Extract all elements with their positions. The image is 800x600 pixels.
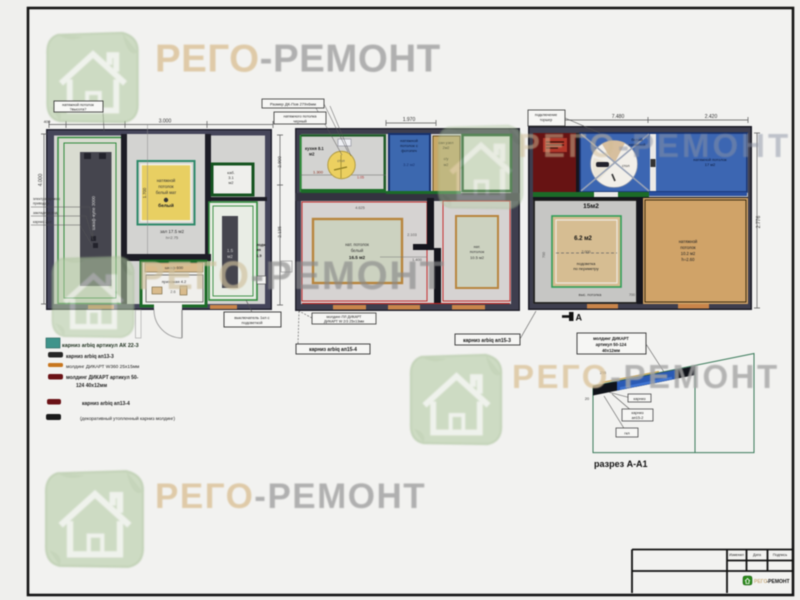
svg-text:фотопеч: фотопеч bbox=[401, 148, 417, 153]
svg-text:РЕГО: РЕГО bbox=[754, 579, 767, 585]
svg-text:разрез А-А1: разрез А-А1 bbox=[594, 459, 648, 469]
svg-text:Размер ДК-Пов 279х6мм: Размер ДК-Пов 279х6мм bbox=[270, 102, 316, 107]
svg-text:2.103: 2.103 bbox=[407, 233, 417, 237]
svg-text:карниз arbiq артикул АК 22-3: карниз arbiq артикул АК 22-3 bbox=[62, 343, 139, 349]
svg-text:400: 400 bbox=[44, 119, 51, 124]
svg-text:А: А bbox=[576, 313, 583, 323]
svg-text:молдинг ДИКАРТ артикул 50-: молдинг ДИКАРТ артикул 50- bbox=[66, 375, 139, 381]
svg-text:зал 17.5 м2: зал 17.5 м2 bbox=[160, 229, 185, 234]
svg-text:карниз 2шт: карниз 2шт bbox=[33, 220, 52, 224]
svg-text:2.135: 2.135 bbox=[277, 226, 282, 238]
svg-text:1.05: 1.05 bbox=[357, 176, 364, 180]
svg-text:ия: ия bbox=[257, 248, 261, 252]
svg-text:124 40х12мм: 124 40х12мм bbox=[76, 383, 107, 389]
svg-text:1.970: 1.970 bbox=[403, 117, 416, 123]
svg-text:2.420: 2.420 bbox=[705, 114, 718, 120]
svg-text:м2: м2 bbox=[309, 152, 315, 157]
svg-text:нат. потолок: нат. потолок bbox=[345, 242, 369, 247]
svg-text:выс. потолка: выс. потолка bbox=[579, 293, 603, 297]
svg-text:2.900: 2.900 bbox=[277, 156, 282, 168]
svg-text:подключение: подключение bbox=[535, 113, 557, 117]
svg-text:приводом: приводом bbox=[33, 202, 50, 206]
svg-text:электрокарниз с: электрокарниз с bbox=[33, 197, 60, 201]
svg-text:кухня 8.1: кухня 8.1 bbox=[305, 146, 324, 151]
svg-text:молдинг ДИКАРТ W360 25х15мм: молдинг ДИКАРТ W360 25х15мм bbox=[66, 364, 139, 370]
svg-text:ДИКАРТ W 2/3 25х13мм: ДИКАРТ W 2/3 25х13мм bbox=[324, 320, 365, 324]
svg-text:черный: черный bbox=[293, 120, 306, 124]
svg-text:м2: м2 bbox=[229, 180, 235, 185]
svg-text:РЕГО-РЕМОНТ: РЕГО-РЕМОНТ bbox=[512, 358, 780, 395]
svg-text:3.2 м2: 3.2 м2 bbox=[403, 162, 415, 167]
svg-text:6.2 м2: 6.2 м2 bbox=[574, 236, 592, 242]
svg-text:(декоративный утопленный карни: (декоративный утопленный карниз молдинг) bbox=[80, 415, 175, 421]
svg-text:карниз arbiq ап13-4: карниз arbiq ап13-4 bbox=[82, 401, 130, 407]
svg-text:1.300: 1.300 bbox=[313, 170, 324, 175]
svg-text:2.000: 2.000 bbox=[582, 250, 591, 254]
svg-text:артикул 50-124: артикул 50-124 bbox=[596, 342, 627, 347]
svg-text:4.625: 4.625 bbox=[355, 206, 365, 210]
svg-text:40х12мм: 40х12мм bbox=[602, 348, 620, 353]
svg-text:карниз arbiq ап13-3: карниз arbiq ап13-3 bbox=[66, 354, 114, 360]
svg-text:потолок: потолок bbox=[158, 184, 173, 189]
svg-text:3.000: 3.000 bbox=[159, 119, 172, 125]
svg-text:РЕГО-РЕМОНТ: РЕГО-РЕМОНТ bbox=[155, 477, 426, 516]
svg-text:20: 20 bbox=[585, 397, 589, 401]
svg-text:Подпись: Подпись bbox=[773, 553, 787, 557]
svg-text:натяжного потолка: натяжного потолка bbox=[283, 115, 317, 119]
svg-text:?высота?: ?высота? bbox=[70, 108, 87, 112]
svg-text:потолок: потолок bbox=[680, 245, 695, 250]
svg-text:2.776: 2.776 bbox=[756, 216, 762, 229]
svg-text:10.2 м2: 10.2 м2 bbox=[681, 251, 696, 256]
svg-text:15м2: 15м2 bbox=[583, 203, 599, 210]
svg-text:торшер: торшер bbox=[540, 118, 552, 122]
svg-text:h=2.60: h=2.60 bbox=[682, 257, 696, 262]
svg-text:белый мат: белый мат bbox=[156, 190, 177, 195]
svg-text:потолок: потолок bbox=[470, 249, 485, 254]
svg-text:карниз: карниз bbox=[634, 397, 646, 401]
svg-text:РЕГО-РЕМОНТ: РЕГО-РЕМОНТ bbox=[138, 254, 446, 298]
svg-text:натяжной: натяжной bbox=[679, 239, 698, 244]
svg-text:10.5 м2: 10.5 м2 bbox=[470, 255, 485, 260]
svg-text:молдинг-ПЛ ДИКАРТ: молдинг-ПЛ ДИКАРТ bbox=[327, 315, 363, 319]
svg-text:4.000: 4.000 bbox=[38, 174, 44, 187]
svg-text:карниз: карниз bbox=[632, 411, 644, 415]
svg-text:подсветкой: подсветкой bbox=[242, 320, 263, 325]
svg-text:белый: белый bbox=[158, 202, 174, 209]
svg-text:1.5: 1.5 bbox=[227, 248, 234, 253]
svg-text:белый: белый bbox=[351, 248, 364, 253]
svg-text:гкл: гкл bbox=[624, 432, 629, 436]
svg-text:1.700: 1.700 bbox=[142, 187, 147, 198]
svg-text:РЕГО-РЕМОНТ: РЕГО-РЕМОНТ bbox=[518, 127, 791, 164]
svg-text:карниз arbiq ап15-3: карниз arbiq ап15-3 bbox=[463, 338, 511, 344]
svg-text:молдинг ДИКАРТ: молдинг ДИКАРТ bbox=[593, 336, 629, 341]
svg-text:натяжной: натяжной bbox=[157, 178, 176, 183]
svg-text:ап15-2: ап15-2 bbox=[632, 416, 644, 420]
svg-text:Изменил: Изменил bbox=[729, 553, 744, 557]
svg-text:-РЕМОНТ: -РЕМОНТ bbox=[767, 579, 790, 585]
svg-text:по периметру: по периметру bbox=[573, 266, 598, 271]
svg-text:натяжной потолок: натяжной потолок bbox=[62, 103, 94, 107]
svg-text:карниз arbiq ап15-4: карниз arbiq ап15-4 bbox=[309, 347, 357, 353]
svg-text:закладная под: закладная под bbox=[33, 211, 58, 215]
svg-text:h=2.75: h=2.75 bbox=[166, 235, 179, 240]
svg-text:РЕГО-РЕМОНТ: РЕГО-РЕМОНТ bbox=[155, 38, 441, 81]
svg-text:700: 700 bbox=[542, 252, 546, 258]
svg-text:стол: стол bbox=[622, 164, 629, 168]
svg-text:7.480: 7.480 bbox=[612, 114, 625, 120]
svg-text:Дата: Дата bbox=[753, 553, 761, 557]
svg-text:лодж: лодж bbox=[257, 243, 267, 247]
svg-text:700: 700 bbox=[629, 293, 635, 297]
